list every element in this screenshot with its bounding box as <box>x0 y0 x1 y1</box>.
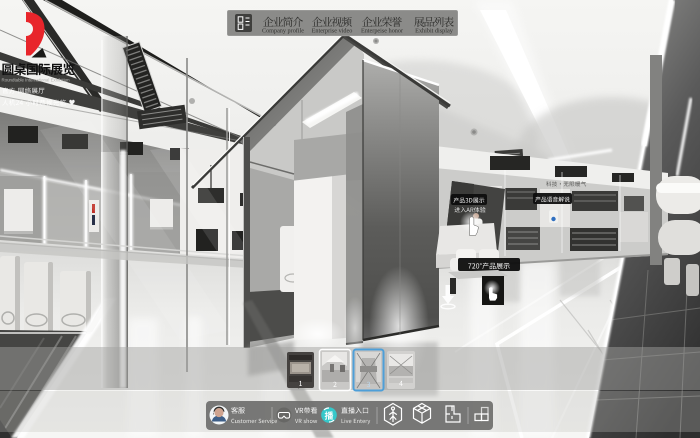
svg-text:Exhibit display: Exhibit display <box>415 28 454 35</box>
svg-text:Enterpeise honor: Enterpeise honor <box>361 28 403 35</box>
svg-text:Roundtable International Exhib: Roundtable International Exhibition <box>2 78 71 83</box>
svg-text:Company profile: Company profile <box>262 28 304 35</box>
svg-text:Enterprise video: Enterprise video <box>312 28 353 35</box>
